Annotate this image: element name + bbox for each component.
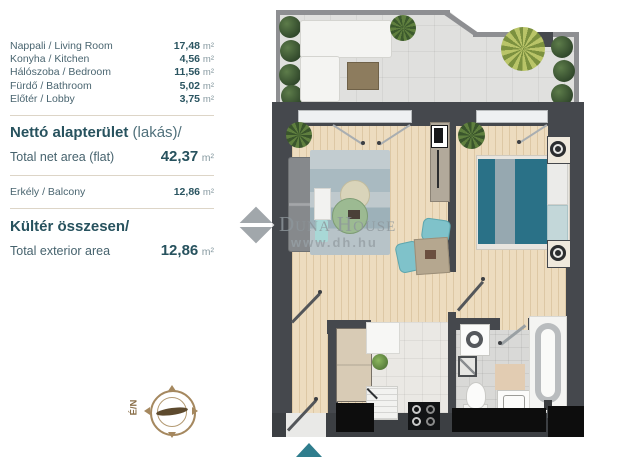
exterior-unit: m² — [202, 246, 214, 258]
net-area-label: Total net area (flat) — [10, 150, 114, 164]
bed-runner — [495, 159, 515, 244]
duna-house-watermark: Duna House www.dh.hu — [243, 208, 403, 256]
living-room-window — [298, 110, 412, 123]
bedroom-window — [476, 110, 548, 123]
room-label: Fürdő / Bathroom — [10, 80, 92, 93]
stove-burner — [412, 405, 421, 414]
legend-row-living-room: Nappali / Living Room 17,48 m² — [10, 40, 214, 53]
dark-counter — [548, 406, 584, 437]
room-label: Előtér / Lobby — [10, 93, 75, 106]
legend-row-bedroom: Hálószoba / Bedroom 11,56 m² — [10, 66, 214, 79]
toilet — [466, 382, 486, 409]
room-unit: m² — [203, 41, 214, 52]
legend-row-kitchen: Konyha / Kitchen 4,56 m² — [10, 53, 214, 66]
bathtub-basin — [535, 323, 561, 403]
nightstand-tray — [550, 245, 566, 261]
room-value: 3,75 — [180, 93, 200, 105]
bath-mat — [495, 364, 525, 390]
nightstand — [547, 136, 571, 164]
plant-icon — [280, 40, 302, 62]
door-handle-dot — [314, 397, 318, 401]
door-handle-dot — [318, 290, 322, 294]
door-handle-dot — [481, 277, 485, 281]
balcony-table — [347, 62, 379, 90]
exterior-value: 12,86 — [161, 242, 199, 259]
legend-row-bathroom: Fürdő / Bathroom 5,02 m² — [10, 80, 214, 93]
duna-house-logo-icon — [238, 207, 275, 244]
room-label: Konyha / Kitchen — [10, 53, 89, 66]
plant-icon — [279, 64, 301, 86]
stove-burner — [426, 417, 435, 426]
balcony-label: Erkély / Balcony — [10, 186, 85, 199]
room-label: Nappali / Living Room — [10, 40, 113, 53]
net-area-unit: m² — [202, 152, 214, 164]
console-handle — [437, 150, 439, 188]
room-unit: m² — [203, 54, 214, 65]
washing-machine — [460, 324, 490, 356]
plant-icon — [390, 15, 416, 41]
watermark-name: Duna House — [279, 212, 396, 237]
kitchen-counter — [366, 322, 400, 354]
exterior-wall-corner — [548, 102, 584, 136]
net-area-row: Total net area (flat) 42,37 m² — [10, 148, 214, 165]
balcony-unit: m² — [203, 187, 214, 198]
compass-tick-south — [168, 432, 176, 438]
plant-icon — [551, 36, 573, 58]
exterior-title: Kültér összesen/ — [10, 218, 214, 236]
legend-panel: Nappali / Living Room 17,48 m² Konyha / … — [10, 40, 214, 259]
room-unit: m² — [203, 81, 214, 92]
net-area-value: 42,37 — [161, 148, 199, 165]
divider — [10, 115, 214, 116]
room-value: 4,56 — [180, 53, 200, 65]
legend-row-balcony: Erkély / Balcony 12,86 m² — [10, 186, 214, 199]
door-handle-dot — [498, 341, 502, 345]
watermark-url: www.dh.hu — [291, 235, 378, 250]
door-handle-dot — [361, 141, 365, 145]
nightstand-tray — [550, 141, 566, 157]
partition-wall — [448, 312, 456, 413]
plant-icon — [553, 60, 575, 82]
door-handle-dot — [517, 140, 521, 144]
room-value: 17,48 — [174, 40, 200, 52]
north-label: É/N — [128, 400, 139, 416]
washer-door — [466, 331, 483, 348]
dark-counter — [336, 403, 374, 432]
room-unit: m² — [203, 94, 214, 105]
balcony-sofa — [300, 20, 392, 58]
door-handle-dot — [377, 141, 381, 145]
exterior-wall-left — [272, 102, 292, 437]
balcony-railing — [276, 10, 450, 15]
bed-pillow — [547, 163, 568, 205]
dark-counter — [452, 408, 546, 432]
legend-row-lobby: Előtér / Lobby 3,75 m² — [10, 93, 214, 106]
balcony-value: 12,86 — [174, 186, 200, 198]
compass-tick-west — [144, 407, 150, 415]
divider — [10, 208, 214, 209]
net-area-title: Nettó alapterület (lakás)/ — [10, 124, 214, 142]
plant-icon — [372, 354, 388, 370]
divider — [10, 175, 214, 176]
plant-icon — [458, 122, 485, 149]
stove-burner — [426, 405, 435, 414]
stove-burner — [412, 417, 421, 426]
room-label: Hálószoba / Bedroom — [10, 66, 111, 79]
table-centerpiece — [425, 250, 436, 259]
yucca-plant-icon — [501, 27, 545, 71]
nightstand — [547, 240, 571, 268]
room-value: 5,02 — [180, 80, 200, 92]
wall-radiator — [458, 356, 477, 377]
balcony-sofa — [300, 56, 340, 102]
compass-tick-north — [168, 385, 176, 391]
bathtub — [529, 316, 567, 412]
compass: É/N — [128, 388, 198, 438]
plant-icon — [286, 122, 312, 148]
compass-tick-east — [192, 407, 198, 415]
room-unit: m² — [203, 67, 214, 78]
plant-icon — [279, 16, 301, 38]
exterior-row: Total exterior area 12,86 m² — [10, 242, 214, 259]
bed-pillow — [547, 205, 568, 244]
exterior-label: Total exterior area — [10, 244, 110, 258]
room-value: 11,56 — [174, 66, 200, 78]
tv-screen — [434, 128, 443, 143]
entrance-arrow-icon — [296, 443, 322, 457]
